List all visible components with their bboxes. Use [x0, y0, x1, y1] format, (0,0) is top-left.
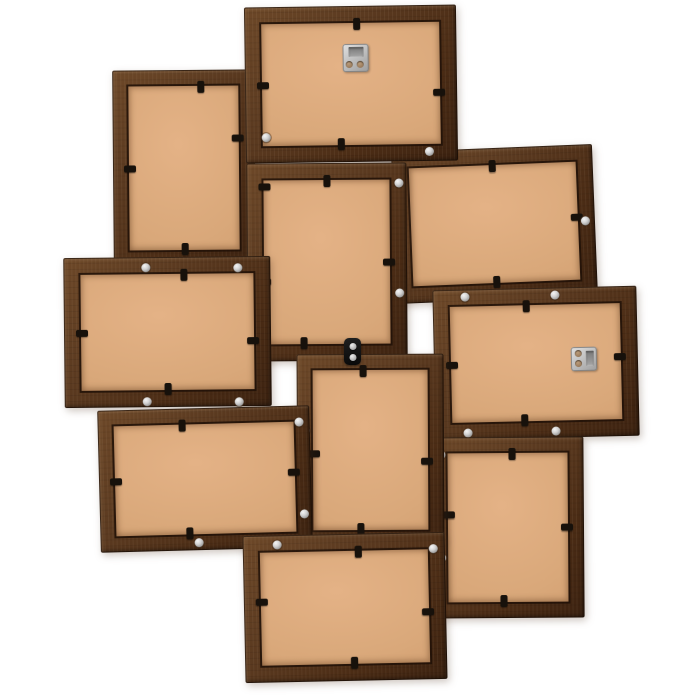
retainer-clip — [232, 135, 244, 142]
screw-head — [272, 540, 281, 549]
screw-head — [551, 426, 560, 435]
retainer-clip — [353, 18, 360, 30]
retainer-clip — [76, 329, 88, 336]
bracket-screw-head — [349, 354, 356, 361]
photo-frame-middle-left — [63, 256, 272, 408]
collage-frame-back-photo — [0, 0, 700, 700]
retainer-clip — [433, 89, 445, 96]
retainer-clip — [443, 512, 455, 519]
retainer-clip — [300, 337, 307, 349]
hanger-hole — [357, 61, 364, 68]
hanger-slot — [348, 47, 363, 57]
photo-frame-top-center — [244, 5, 458, 164]
screw-head — [424, 146, 433, 155]
mdf-backing-board — [447, 453, 568, 603]
retainer-clip — [197, 81, 204, 93]
screw-head — [142, 397, 151, 406]
mdf-backing-board — [261, 22, 441, 146]
screw-head — [141, 263, 150, 272]
hanger-slot — [586, 351, 594, 366]
retainer-clip — [110, 478, 122, 485]
retainer-clip — [323, 175, 330, 187]
screw-head — [194, 538, 203, 547]
retainer-clip — [521, 414, 528, 426]
mdf-backing-board — [263, 180, 390, 345]
photo-frame-middle-right — [432, 286, 639, 441]
retainer-clip — [124, 165, 136, 172]
retainer-clip — [421, 458, 433, 465]
retainer-clip — [561, 524, 573, 531]
photo-frame-bottom-center — [242, 532, 447, 683]
retainer-clip — [179, 419, 186, 431]
retainer-clip — [488, 160, 495, 172]
metal-hanger-plate — [342, 44, 368, 72]
retainer-clip — [422, 608, 434, 615]
photo-frame-bottom-left — [97, 405, 313, 553]
hanger-hole — [346, 61, 353, 68]
retainer-clip — [165, 383, 172, 395]
screw-head — [463, 428, 472, 437]
screw-head — [261, 133, 270, 142]
screw-head — [395, 288, 404, 297]
retainer-clip — [258, 184, 270, 191]
retainer-clip — [256, 598, 268, 605]
screw-head — [460, 292, 469, 301]
mdf-backing-board — [313, 370, 429, 531]
screw-head — [580, 216, 589, 225]
retainer-clip — [354, 546, 361, 558]
retainer-clip — [181, 243, 188, 255]
mdf-backing-board — [260, 549, 430, 665]
retainer-clip — [338, 138, 345, 150]
screw-head — [550, 290, 559, 299]
screw-head — [299, 509, 308, 518]
mdf-backing-board — [128, 86, 239, 251]
retainer-clip — [523, 300, 530, 312]
mdf-backing-board — [114, 422, 297, 537]
retainer-clip — [500, 595, 507, 607]
retainer-clip — [359, 365, 366, 377]
hanger-hole — [575, 360, 582, 367]
retainer-clip — [257, 82, 269, 89]
retainer-clip — [288, 469, 300, 476]
screw-head — [428, 544, 437, 553]
metal-hanger-plate — [571, 347, 598, 372]
mdf-backing-board — [80, 273, 254, 391]
mdf-backing-board — [409, 162, 581, 287]
retainer-clip — [383, 258, 395, 265]
screw-head — [394, 178, 403, 187]
retainer-clip — [247, 337, 259, 344]
screw-head — [234, 397, 243, 406]
black-hanger-bracket — [344, 338, 361, 365]
photo-frame-top-left — [112, 69, 256, 266]
retainer-clip — [508, 448, 515, 460]
hanger-hole — [575, 350, 582, 357]
retainer-clip — [446, 361, 458, 368]
photo-frame-bottom-center-portrait — [296, 354, 444, 547]
retainer-clip — [614, 353, 626, 360]
retainer-clip — [180, 269, 187, 281]
photo-frame-bottom-right — [431, 436, 584, 618]
retainer-clip — [186, 527, 193, 539]
retainer-clip — [351, 657, 358, 669]
bracket-screw-head — [349, 343, 356, 350]
screw-head — [233, 263, 242, 272]
retainer-clip — [493, 276, 500, 288]
photo-frame-top-right — [391, 144, 598, 304]
screw-head — [294, 417, 303, 426]
